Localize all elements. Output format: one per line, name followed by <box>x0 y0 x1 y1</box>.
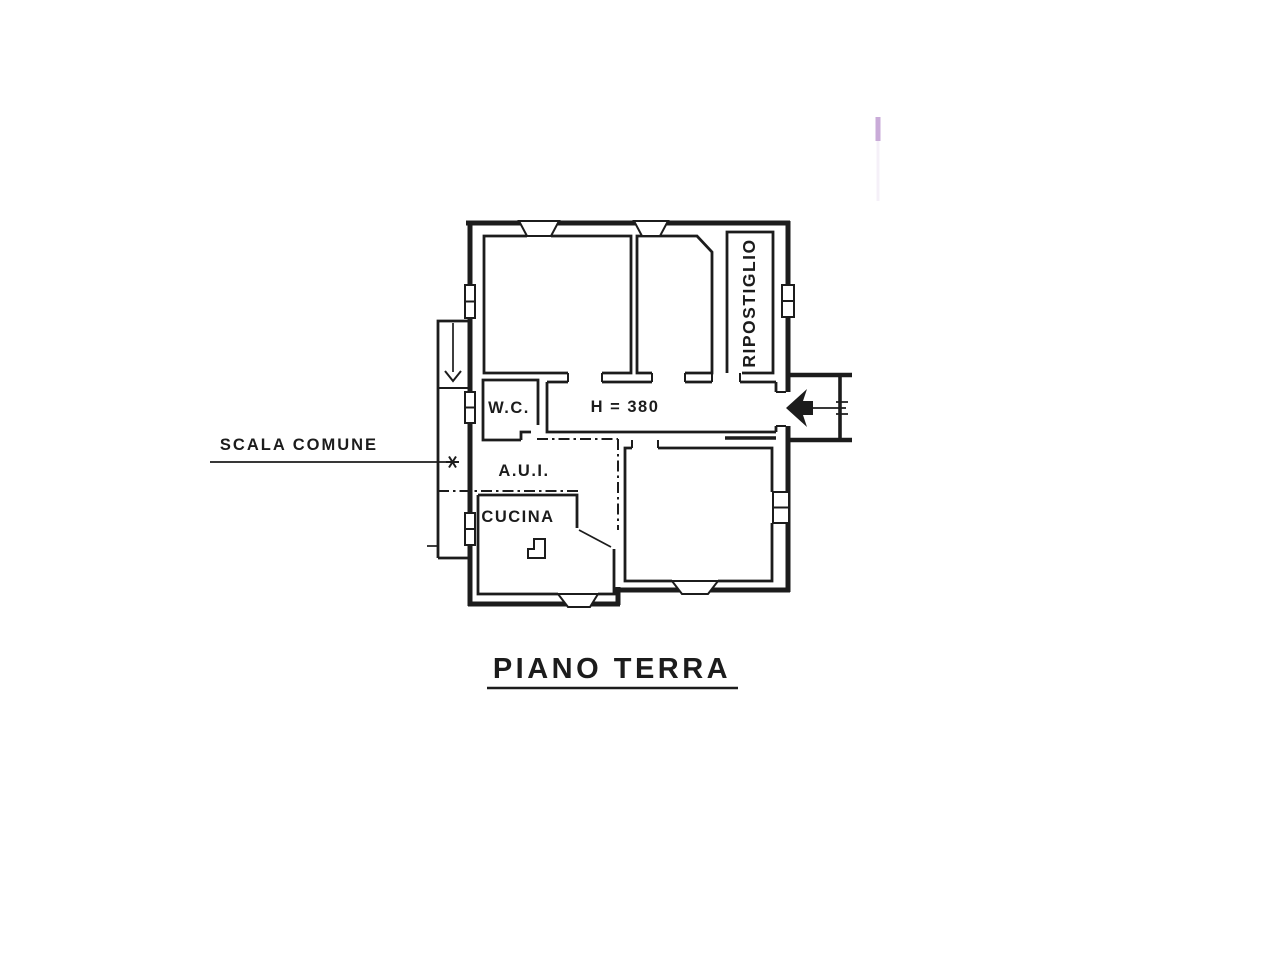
window-left-upper <box>465 285 475 318</box>
scala-comune-annotation: SCALA COMUNE <box>210 436 459 468</box>
floor-plan-drawing: SCALA COMUNE W.C. H = 380 A.U.I. CUCINA … <box>0 0 1280 960</box>
window-top-1 <box>519 221 559 236</box>
ripostiglio-label: RIPOSTIGLIO <box>739 238 759 367</box>
artifact-line-fade <box>877 141 880 201</box>
scan-artifact <box>876 117 881 201</box>
scala-comune-label: SCALA COMUNE <box>220 436 378 454</box>
floor-title-group: PIANO TERRA <box>487 653 738 688</box>
room-topmiddle-outline <box>637 236 712 373</box>
corridor-height-label: H = 380 <box>591 398 660 416</box>
window-left-wc <box>465 392 475 423</box>
room-topleft-outline <box>484 236 631 373</box>
livingroom-door-jambs <box>632 440 658 448</box>
entrance-arrow-icon <box>786 389 813 427</box>
corridor-outline <box>547 382 776 432</box>
common-staircase-shaft <box>427 321 470 558</box>
wc-label: W.C. <box>488 399 530 417</box>
sink-symbol-icon <box>528 539 545 558</box>
stair-direction-arrow-icon <box>445 371 461 381</box>
plan-title: PIANO TERRA <box>493 653 731 685</box>
scanned-floor-plan-page: SCALA COMUNE W.C. H = 380 A.U.I. CUCINA … <box>0 0 1280 960</box>
cucina-door-leaf <box>579 530 611 547</box>
artifact-line <box>876 117 881 141</box>
window-right-ripostiglio <box>782 285 794 317</box>
scala-star-marker-icon <box>446 457 459 468</box>
window-top-2 <box>634 221 668 236</box>
corridor-door-jambs <box>568 373 740 382</box>
aui-label: A.U.I. <box>498 462 549 480</box>
entrance-door-jambs <box>776 392 786 426</box>
window-left-kitchen <box>465 513 475 545</box>
window-right-livingroom <box>773 492 789 523</box>
cucina-label: CUCINA <box>481 508 554 526</box>
entrance-landing <box>786 375 852 440</box>
room-bottomright-outline <box>625 448 772 581</box>
